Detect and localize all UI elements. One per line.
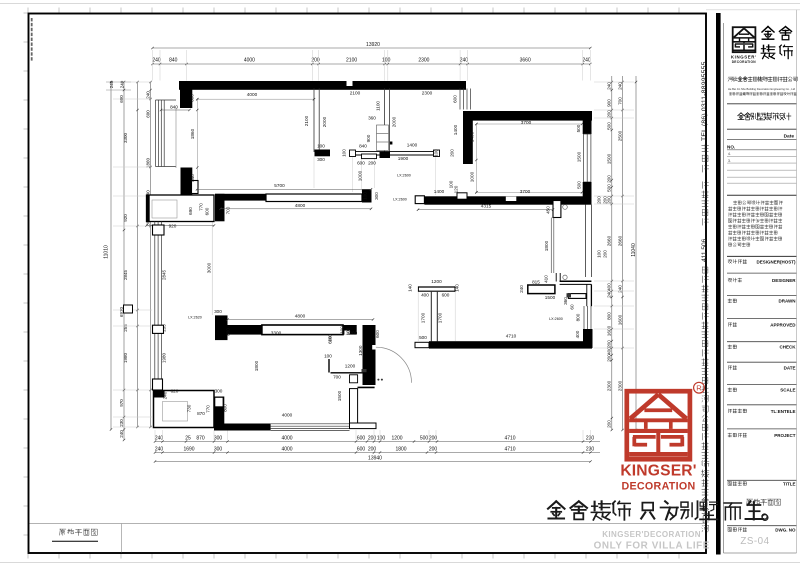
svg-text:1980: 1980 xyxy=(162,352,167,363)
svg-text:240: 240 xyxy=(607,82,612,90)
svg-text:600: 600 xyxy=(205,207,210,215)
svg-text:240: 240 xyxy=(155,435,164,441)
svg-text:230: 230 xyxy=(119,419,124,427)
svg-text:140: 140 xyxy=(408,284,413,292)
svg-text:LX:2600: LX:2600 xyxy=(393,198,407,202)
svg-text:770: 770 xyxy=(206,405,211,413)
svg-text:500: 500 xyxy=(607,184,612,192)
svg-text:4000: 4000 xyxy=(247,92,258,97)
svg-text:140: 140 xyxy=(455,284,460,292)
svg-text:240: 240 xyxy=(109,80,114,88)
svg-text:700: 700 xyxy=(333,375,341,380)
svg-text:1100: 1100 xyxy=(376,101,381,111)
svg-text:SCALE: SCALE xyxy=(780,388,795,393)
svg-text:815: 815 xyxy=(532,280,540,285)
svg-text:KINGSER'DECORATION: KINGSER'DECORATION xyxy=(602,530,701,539)
svg-text:1400: 1400 xyxy=(470,131,475,142)
svg-text:300: 300 xyxy=(214,435,223,441)
svg-text:1200: 1200 xyxy=(431,279,442,284)
svg-text:TL:ENTELE: TL:ENTELE xyxy=(771,409,796,414)
svg-text:690: 690 xyxy=(188,207,193,215)
svg-text:400: 400 xyxy=(575,330,580,338)
svg-text:1900: 1900 xyxy=(398,156,409,161)
svg-text:240: 240 xyxy=(582,58,591,64)
svg-text:300: 300 xyxy=(214,309,222,314)
svg-text:300: 300 xyxy=(374,192,379,200)
svg-text:KINGSER': KINGSER' xyxy=(620,463,696,480)
svg-text:60: 60 xyxy=(570,304,575,310)
svg-text:730: 730 xyxy=(187,404,192,412)
svg-text:200: 200 xyxy=(607,340,612,348)
svg-text:200: 200 xyxy=(607,420,612,428)
svg-text:2100: 2100 xyxy=(346,58,357,64)
svg-text:1700: 1700 xyxy=(421,312,426,323)
svg-text:200: 200 xyxy=(429,446,438,452)
svg-text:500: 500 xyxy=(577,181,582,189)
svg-text:2845: 2845 xyxy=(162,269,167,280)
svg-text:1400: 1400 xyxy=(453,124,458,135)
svg-text:1200: 1200 xyxy=(345,364,356,369)
svg-text:2660: 2660 xyxy=(617,235,622,246)
svg-text:870: 870 xyxy=(197,411,205,416)
svg-text:1800: 1800 xyxy=(395,446,406,452)
svg-text:1600: 1600 xyxy=(607,325,612,336)
svg-text:1400: 1400 xyxy=(407,143,418,148)
svg-text:920: 920 xyxy=(123,214,128,222)
svg-text:25: 25 xyxy=(185,435,191,441)
svg-text:840: 840 xyxy=(170,105,178,110)
svg-text:3300: 3300 xyxy=(271,331,282,336)
svg-text:4000: 4000 xyxy=(281,435,292,441)
svg-text:300: 300 xyxy=(215,389,223,394)
svg-text:600: 600 xyxy=(375,330,380,338)
svg-text:2000: 2000 xyxy=(392,116,397,127)
svg-text:Date: Date xyxy=(784,133,795,139)
svg-text:200: 200 xyxy=(603,196,608,204)
svg-text:100: 100 xyxy=(346,327,351,335)
svg-text:360: 360 xyxy=(368,116,376,121)
svg-text:1500: 1500 xyxy=(607,153,612,164)
svg-text:100: 100 xyxy=(597,250,602,258)
svg-text:240: 240 xyxy=(155,446,164,452)
svg-text:1000: 1000 xyxy=(358,170,363,181)
svg-text:100: 100 xyxy=(317,144,325,149)
svg-text:600: 600 xyxy=(328,336,333,344)
svg-text:230: 230 xyxy=(586,446,595,452)
svg-text:4000: 4000 xyxy=(281,446,292,452)
svg-text:DECORATION: DECORATION xyxy=(621,480,695,492)
svg-text:2845: 2845 xyxy=(123,269,128,280)
svg-text:2300: 2300 xyxy=(422,91,433,96)
svg-text:770: 770 xyxy=(199,203,204,211)
svg-text:APPROVED: APPROVED xyxy=(770,322,796,327)
svg-text:ONLY FOR VILLA LIFE: ONLY FOR VILLA LIFE xyxy=(594,541,710,552)
svg-text:100: 100 xyxy=(434,149,439,157)
svg-text:1400: 1400 xyxy=(434,189,445,194)
svg-text:240: 240 xyxy=(617,285,622,293)
svg-text:1500: 1500 xyxy=(577,151,582,162)
svg-text:240: 240 xyxy=(163,391,168,399)
svg-text:500: 500 xyxy=(607,122,612,130)
svg-text:200: 200 xyxy=(603,250,608,258)
svg-text:100: 100 xyxy=(342,149,347,157)
svg-text:DWG. NO: DWG. NO xyxy=(775,527,796,532)
svg-text:13940: 13940 xyxy=(368,456,382,462)
svg-text:500: 500 xyxy=(576,124,581,132)
svg-text:13920: 13920 xyxy=(366,42,380,48)
svg-text:800: 800 xyxy=(226,328,231,336)
svg-text:100: 100 xyxy=(363,192,368,200)
svg-text:4710: 4710 xyxy=(504,446,515,452)
svg-text:840: 840 xyxy=(359,144,367,149)
svg-text:R: R xyxy=(696,384,702,393)
svg-text:700: 700 xyxy=(226,206,231,214)
svg-text:411 506: 411 506 xyxy=(701,238,708,262)
svg-text:1500: 1500 xyxy=(545,295,556,300)
svg-text:600: 600 xyxy=(190,94,195,102)
svg-text:240: 240 xyxy=(460,58,469,64)
svg-text:200: 200 xyxy=(597,196,602,204)
svg-text:NO.: NO. xyxy=(727,145,735,150)
svg-text:1600: 1600 xyxy=(617,314,622,325)
svg-text:900: 900 xyxy=(366,134,371,142)
svg-text:LX:2600: LX:2600 xyxy=(549,317,563,321)
svg-text:300: 300 xyxy=(317,157,325,162)
svg-text:120: 120 xyxy=(454,185,459,193)
svg-text:840: 840 xyxy=(169,58,178,64)
svg-text:2100: 2100 xyxy=(304,115,309,126)
svg-text:2660: 2660 xyxy=(607,235,612,246)
svg-text:KINGSER': KINGSER' xyxy=(731,55,757,60)
svg-text:1980: 1980 xyxy=(123,352,128,363)
svg-text:11010: 11010 xyxy=(104,245,110,259)
svg-text:800: 800 xyxy=(576,313,581,321)
svg-text:1800: 1800 xyxy=(254,360,259,371)
svg-text:3700: 3700 xyxy=(520,189,531,194)
svg-text:2000: 2000 xyxy=(322,116,327,127)
svg-text:TITLE: TITLE xyxy=(783,481,796,486)
svg-text:3.: 3. xyxy=(728,159,731,163)
svg-text:400: 400 xyxy=(421,292,429,297)
svg-text:240: 240 xyxy=(519,285,524,293)
svg-text:920: 920 xyxy=(169,224,177,229)
svg-text:2300: 2300 xyxy=(418,58,429,64)
svg-text:240: 240 xyxy=(145,91,150,99)
svg-text:500: 500 xyxy=(419,335,427,340)
svg-text:800: 800 xyxy=(607,312,612,320)
svg-text:3660: 3660 xyxy=(520,58,531,64)
svg-text:200: 200 xyxy=(368,446,377,452)
svg-text:300: 300 xyxy=(214,446,223,452)
svg-text:600: 600 xyxy=(357,446,366,452)
svg-text:600: 600 xyxy=(357,435,366,441)
svg-text:3700: 3700 xyxy=(521,120,532,125)
svg-text:2100: 2100 xyxy=(350,91,361,96)
svg-text:240: 240 xyxy=(152,58,161,64)
svg-text:DESIGNER: DESIGNER xyxy=(772,278,796,283)
svg-text:500: 500 xyxy=(420,435,429,441)
svg-text:2300: 2300 xyxy=(617,380,622,391)
svg-text:4710: 4710 xyxy=(504,435,515,441)
svg-text:DATE: DATE xyxy=(784,365,796,370)
svg-text:800: 800 xyxy=(223,404,228,412)
svg-text:He Bei Jin She Building Decora: He Bei Jin She Building Decoration Engin… xyxy=(728,87,796,91)
svg-text:900: 900 xyxy=(607,99,612,107)
svg-text:4000: 4000 xyxy=(282,413,293,418)
svg-text:PROJECT: PROJECT xyxy=(774,433,796,438)
svg-text:240: 240 xyxy=(119,430,124,438)
svg-text:200: 200 xyxy=(368,161,376,166)
svg-text:600: 600 xyxy=(357,161,365,166)
svg-text:100: 100 xyxy=(377,435,386,441)
svg-text:3300: 3300 xyxy=(123,132,128,143)
svg-text:4800: 4800 xyxy=(295,203,306,208)
svg-text:1300: 1300 xyxy=(358,345,363,356)
svg-text:1800: 1800 xyxy=(544,240,549,251)
svg-text:DECORATION: DECORATION xyxy=(732,60,757,64)
svg-text:1200: 1200 xyxy=(391,435,402,441)
svg-text:1860: 1860 xyxy=(145,157,150,168)
svg-text:230: 230 xyxy=(586,435,595,441)
svg-text:3000: 3000 xyxy=(207,262,212,273)
svg-text:600: 600 xyxy=(453,95,458,103)
svg-text:LX:2620: LX:2620 xyxy=(188,316,202,320)
svg-text:TEL (86) 0311-88995555: TEL (86) 0311-88995555 xyxy=(701,61,708,141)
svg-text:CHECK: CHECK xyxy=(779,345,796,350)
svg-text:200: 200 xyxy=(368,435,377,441)
svg-text:LX:2600: LX:2600 xyxy=(397,174,411,178)
svg-text:200: 200 xyxy=(607,354,612,362)
svg-text:200: 200 xyxy=(607,110,612,118)
svg-text:4710: 4710 xyxy=(506,334,517,339)
svg-text:970: 970 xyxy=(119,399,124,407)
svg-text:1860: 1860 xyxy=(190,128,195,139)
svg-text:600: 600 xyxy=(442,292,450,297)
svg-text:1000: 1000 xyxy=(470,171,475,182)
svg-text:200: 200 xyxy=(450,149,455,157)
svg-text:4315: 4315 xyxy=(481,204,492,209)
svg-text:ZS-04: ZS-04 xyxy=(740,536,769,547)
svg-text:400: 400 xyxy=(607,283,612,291)
svg-text:DESIGNER(HOST): DESIGNER(HOST) xyxy=(756,259,796,264)
svg-text:410: 410 xyxy=(544,275,549,283)
svg-text:11040: 11040 xyxy=(631,243,637,257)
svg-text:4.: 4. xyxy=(728,152,731,156)
svg-text:100: 100 xyxy=(382,58,391,64)
svg-text:600: 600 xyxy=(145,110,150,118)
svg-text:1500: 1500 xyxy=(337,390,342,401)
svg-text:5700: 5700 xyxy=(274,183,285,188)
svg-text:870: 870 xyxy=(196,435,205,441)
svg-text:820: 820 xyxy=(171,389,179,394)
svg-text:240: 240 xyxy=(617,82,622,90)
svg-text:DRAWN: DRAWN xyxy=(779,299,796,304)
svg-text:840: 840 xyxy=(190,174,195,182)
svg-text:2500: 2500 xyxy=(617,130,622,141)
svg-text:200: 200 xyxy=(607,175,612,183)
svg-text:2300: 2300 xyxy=(607,380,612,391)
svg-text:4800: 4800 xyxy=(295,314,306,319)
svg-text:360: 360 xyxy=(563,297,568,305)
svg-text:4000: 4000 xyxy=(244,58,255,64)
svg-text:1690: 1690 xyxy=(183,446,194,452)
svg-text:1700: 1700 xyxy=(438,312,443,323)
svg-text:100: 100 xyxy=(340,326,345,334)
svg-text:700: 700 xyxy=(617,97,622,105)
svg-text:255: 255 xyxy=(123,324,128,332)
svg-text:100: 100 xyxy=(324,354,332,359)
